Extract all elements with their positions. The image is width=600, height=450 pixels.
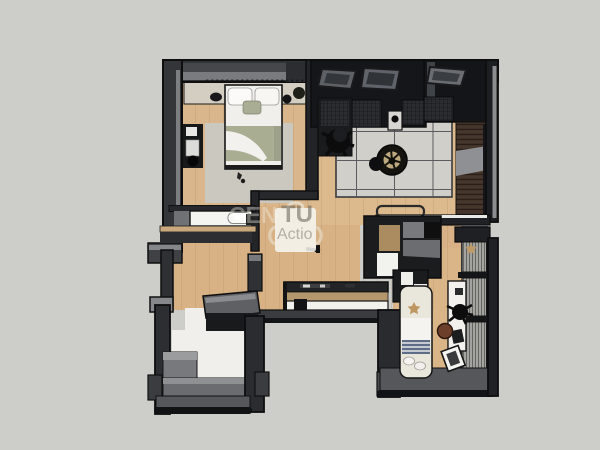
svg-text:TU: TU (281, 201, 313, 228)
svg-text:Actio: Actio (277, 226, 313, 243)
svg-text:CEN: CEN (229, 202, 278, 228)
